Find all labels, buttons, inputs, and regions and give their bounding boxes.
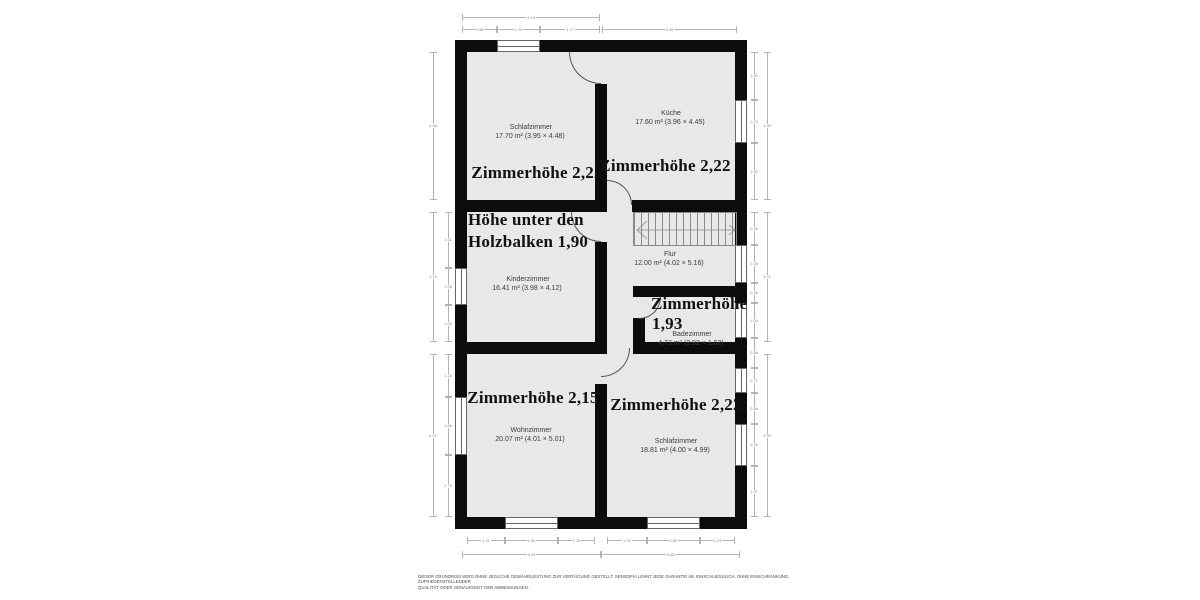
dimension-layer: 4.190.981.201.774.464.484.125.011.611.08…: [0, 0, 1200, 600]
dimension-label: 4.99: [762, 434, 772, 438]
dimension-line: 5.01: [433, 354, 434, 517]
dimension-label: 1.61: [443, 238, 453, 242]
dimension-label: 4.45: [762, 124, 772, 128]
dimension-label: 1.24: [443, 374, 453, 378]
dimension-line: 4.48: [433, 52, 434, 200]
dimension-label: 1.62: [749, 170, 759, 174]
dimension-line: 1.00: [754, 303, 755, 338]
dimension-line: 1.08: [754, 245, 755, 283]
dimension-line: 1.40: [754, 52, 755, 100]
dimension-label: 1.10: [572, 539, 582, 543]
dimension-line: 4.46: [601, 554, 740, 555]
dimension-line: 1.77: [540, 29, 600, 30]
dimension-label: 1.52: [622, 539, 632, 543]
dimension-line: 4.29: [462, 554, 601, 555]
dimension-line: 1.66: [448, 397, 449, 455]
dimension-line: 0.88: [754, 393, 755, 424]
dimension-line: 3.70: [767, 212, 768, 342]
dimension-label: 5.01: [428, 434, 438, 438]
dimension-label: 4.29: [527, 553, 537, 557]
dimension-line: 1.20: [497, 29, 540, 30]
disclaimer-text: DIESER GRUNDRISS WIRD OHNE JEGLICHE GEWÄ…: [418, 574, 808, 590]
dimension-label: 1.79: [443, 484, 453, 488]
dimension-label: 1.77: [565, 28, 575, 32]
dimension-label: 1.05: [443, 322, 453, 326]
dimension-line: 1.62: [754, 143, 755, 200]
dimension-line: 1.23: [700, 540, 735, 541]
dimension-label: 1.40: [749, 74, 759, 78]
dimension-label: 1.31: [481, 539, 491, 543]
dimension-label: 4.46: [665, 28, 675, 32]
dimension-line: 0.98: [462, 29, 497, 30]
dimension-label: 0.95: [749, 227, 759, 231]
dimension-line: 4.12: [433, 212, 434, 342]
dimension-label: 4.48: [428, 124, 438, 128]
dimension-line: 4.19: [462, 17, 600, 18]
dimension-line: 1.10: [558, 540, 595, 541]
dimension-label: 4.19: [526, 16, 536, 20]
dimension-line: 0.58: [754, 283, 755, 303]
dimension-line: 4.45: [767, 52, 768, 200]
disclaimer-line2: QUALITÄT ODER GENAUIGKEIT DER ABMESSUNGE…: [418, 585, 808, 590]
disclaimer-line1: DIESER GRUNDRISS WIRD OHNE JEGLICHE GEWÄ…: [418, 574, 808, 585]
dimension-line: 1.20: [754, 424, 755, 466]
dimension-line: 4.99: [767, 354, 768, 517]
floorplan-canvas: Schlafzimmer 17.70 m² (3.95 × 4.48) Zimm…: [0, 0, 1200, 600]
dimension-line: 0.88: [754, 338, 755, 368]
dimension-label: 4.12: [428, 275, 438, 279]
dimension-line: 1.24: [448, 354, 449, 397]
dimension-label: 4.46: [666, 553, 676, 557]
dimension-line: 0.72: [754, 368, 755, 393]
dimension-line: 1.52: [607, 540, 647, 541]
dimension-line: 1.23: [754, 100, 755, 143]
dimension-label: 1.23: [713, 539, 723, 543]
dimension-label: 1.08: [443, 285, 453, 289]
dimension-label: 1.20: [749, 443, 759, 447]
dimension-label: 3.70: [762, 275, 772, 279]
dimension-line: 1.60: [647, 540, 700, 541]
dimension-label: 1.20: [514, 28, 524, 32]
dimension-line: 1.61: [448, 212, 449, 268]
dimension-line: 1.31: [467, 540, 505, 541]
dimension-label: 0.88: [749, 407, 759, 411]
dimension-label: 1.00: [749, 319, 759, 323]
dimension-label: 1.60: [669, 539, 679, 543]
dimension-line: 1.80: [505, 540, 558, 541]
dimension-label: 1.80: [527, 539, 537, 543]
dimension-label: 1.08: [749, 262, 759, 266]
dimension-line: 0.95: [754, 212, 755, 245]
dimension-label: 1.66: [443, 424, 453, 428]
dimension-line: 1.08: [448, 268, 449, 305]
dimension-label: 0.72: [749, 379, 759, 383]
dimension-line: 4.46: [602, 29, 737, 30]
dimension-label: 1.47: [749, 490, 759, 494]
dimension-line: 1.05: [448, 305, 449, 342]
dimension-label: 0.58: [749, 291, 759, 295]
dimension-line: 1.47: [754, 466, 755, 517]
dimension-line: 1.79: [448, 455, 449, 517]
dimension-label: 1.23: [749, 120, 759, 124]
dimension-label: 0.98: [475, 28, 485, 32]
dimension-label: 0.88: [749, 351, 759, 355]
